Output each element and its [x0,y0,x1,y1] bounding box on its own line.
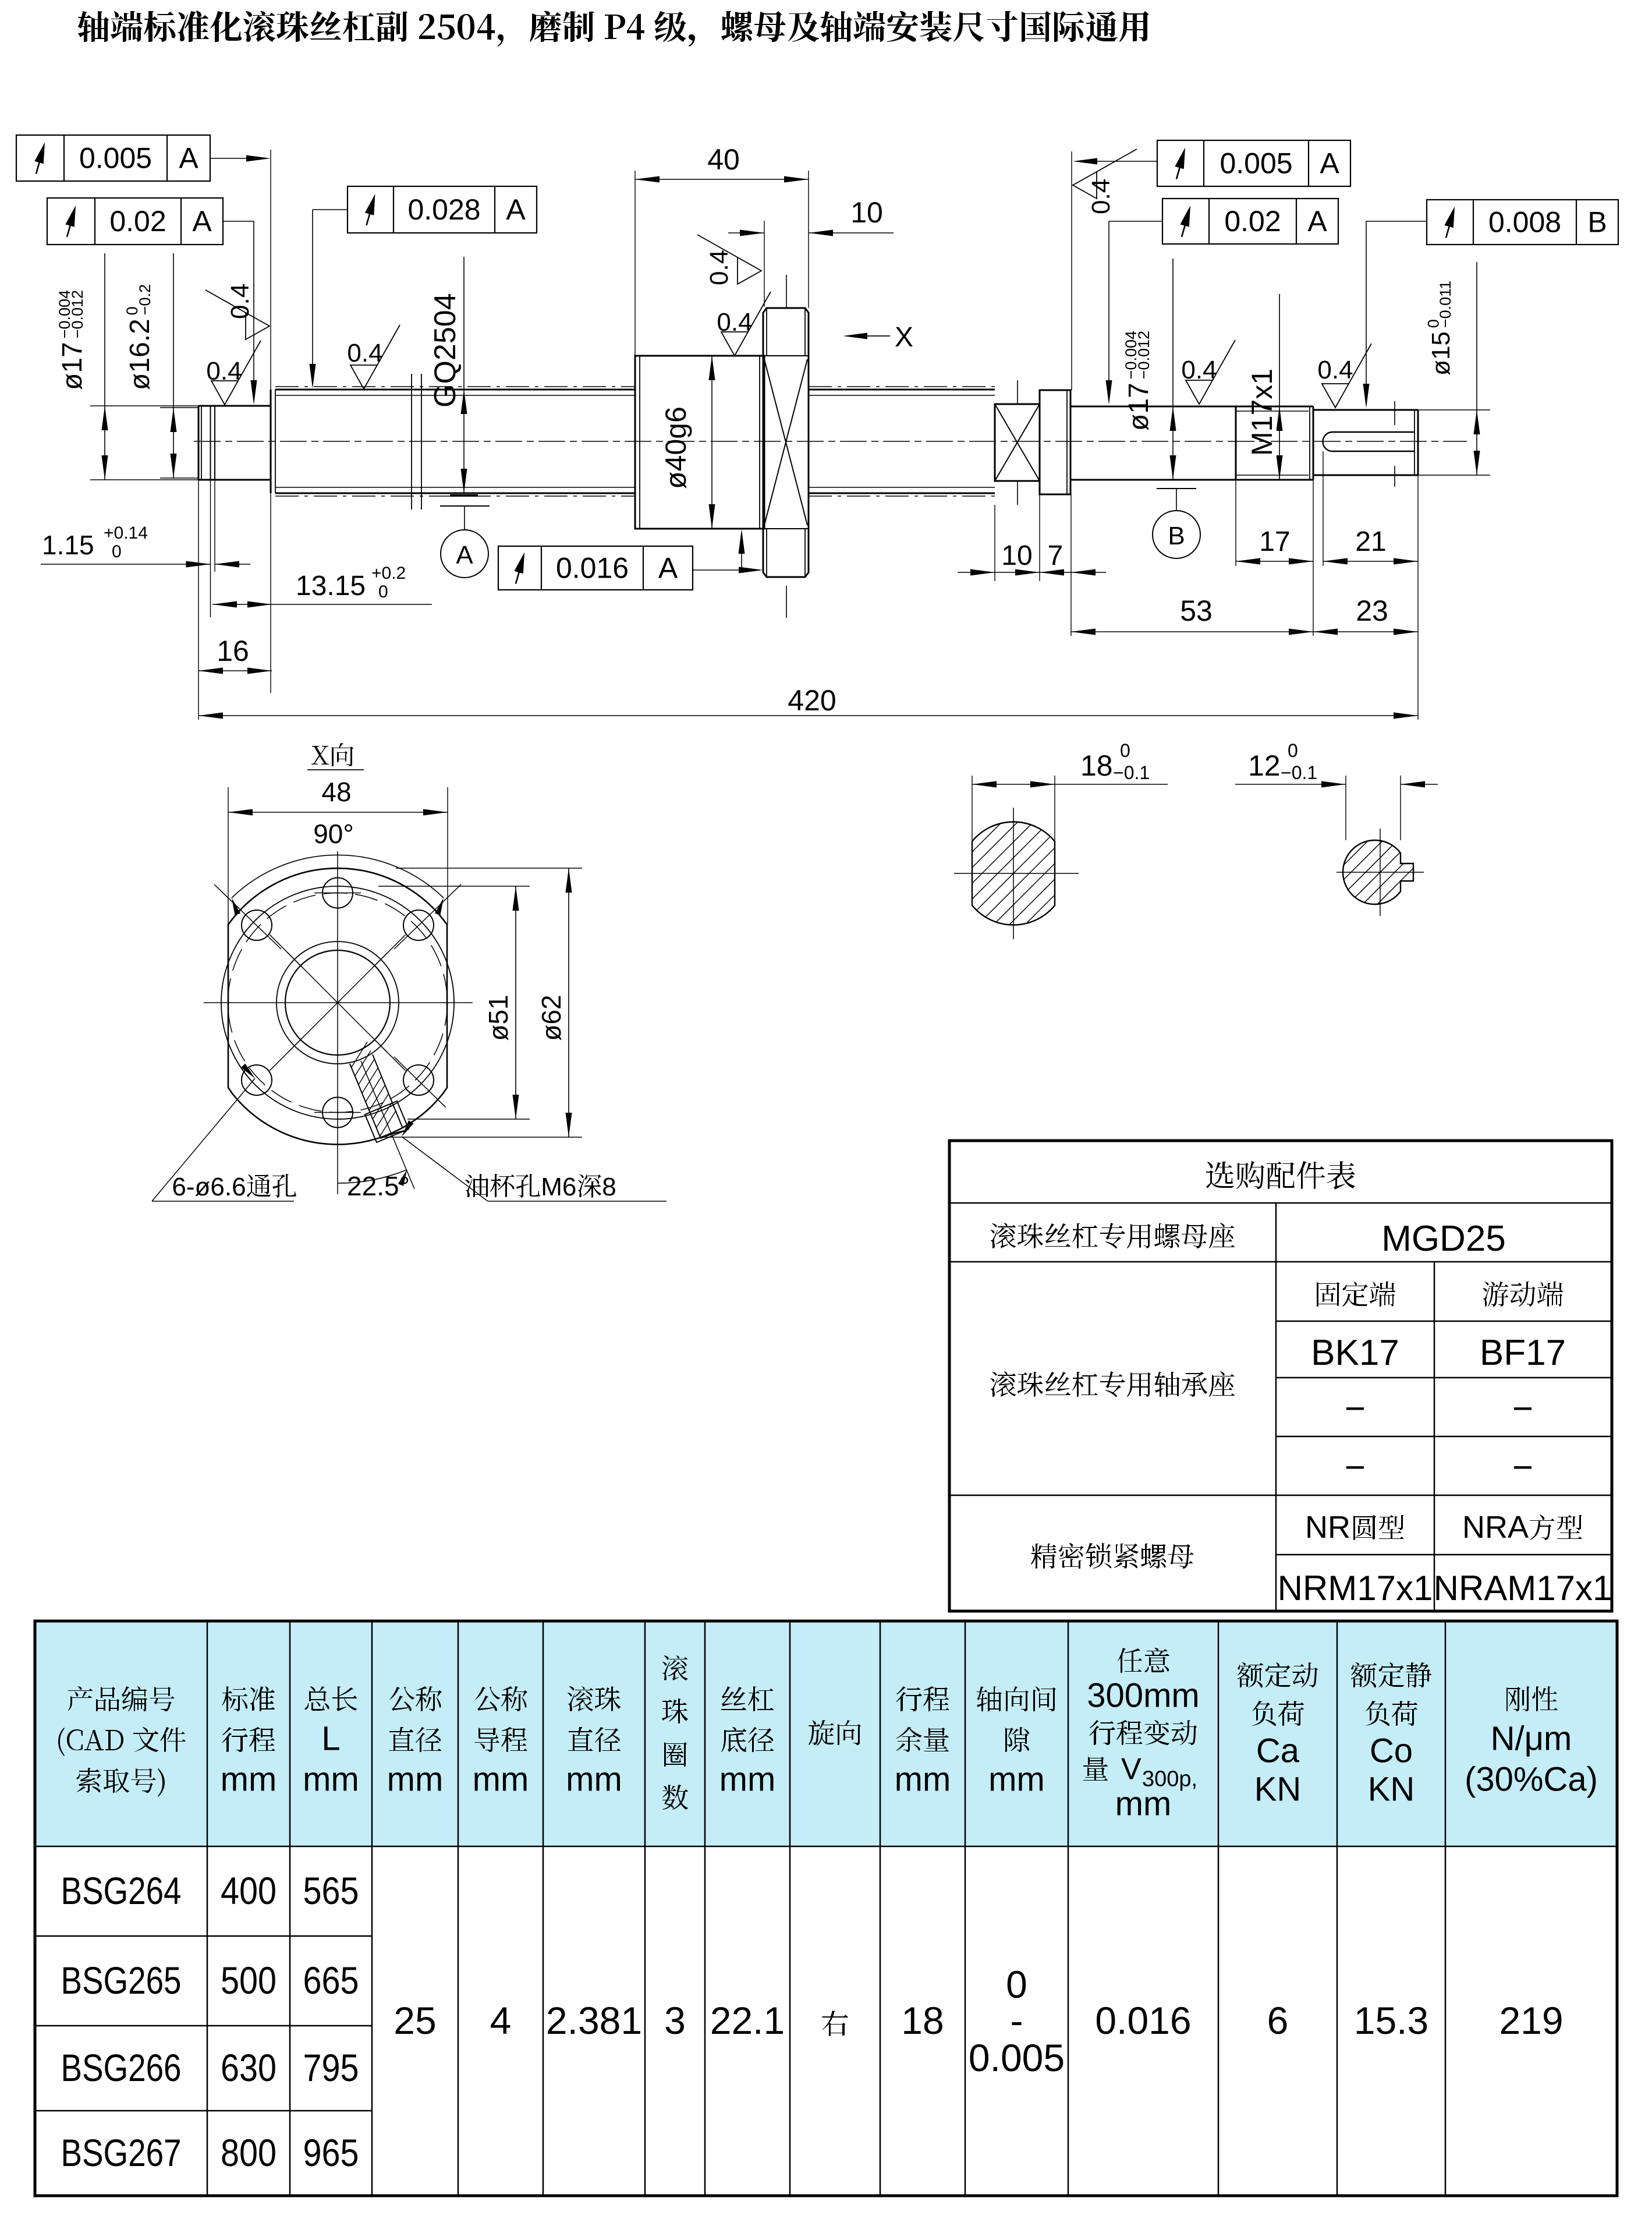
svg-text:800: 800 [221,2131,276,2174]
svg-text:0.016: 0.016 [556,552,629,585]
svg-text:−: − [1512,1448,1533,1488]
svg-text:10: 10 [1001,540,1032,571]
svg-text:NRA: NRA [1462,1510,1529,1545]
svg-text:mm: mm [387,1761,444,1799]
svg-text:0.02: 0.02 [1224,205,1281,238]
svg-text:ø16.2: ø16.2 [125,318,155,390]
svg-text:M17x1: M17x1 [1246,369,1278,456]
svg-text:0.4: 0.4 [717,308,752,337]
svg-text:A: A [506,193,526,226]
svg-text:ø17: ø17 [1123,383,1154,431]
svg-text:B: B [1587,206,1607,239]
svg-text:BSG267: BSG267 [61,2131,182,2174]
svg-text:−: − [1345,1448,1366,1488]
svg-text:0.4: 0.4 [206,357,242,385]
svg-text:21: 21 [1355,526,1386,557]
svg-text:B: B [1168,522,1185,550]
svg-text:Ca: Ca [1256,1732,1300,1770]
svg-text:−0.2: −0.2 [136,284,154,315]
svg-text:1.15: 1.15 [42,530,94,560]
svg-text:−0.1: −0.1 [1281,762,1317,783]
svg-text:mm: mm [566,1761,622,1799]
svg-text:0.02: 0.02 [109,205,166,238]
svg-text:7: 7 [1048,540,1063,571]
svg-text:565: 565 [303,1869,359,1912]
svg-text:NRAM17x1: NRAM17x1 [1434,1569,1612,1608]
svg-text:A: A [1307,205,1327,238]
svg-text:M6: M6 [541,1173,576,1201]
svg-text:16: 16 [217,635,249,667]
svg-text:0.005: 0.005 [969,2036,1065,2079]
svg-text:−0.1: −0.1 [1113,762,1150,783]
svg-text:665: 665 [303,1959,359,2002]
svg-text:6-ø6.6: 6-ø6.6 [172,1173,246,1201]
svg-text:−: − [1345,1389,1366,1429]
svg-text:mm: mm [988,1761,1045,1799]
svg-text:0.4: 0.4 [1087,179,1115,214]
svg-text:L: L [321,1720,340,1758]
svg-text:0.028: 0.028 [407,193,480,226]
svg-text:ø62: ø62 [536,995,566,1041]
svg-text:mm: mm [221,1761,277,1799]
svg-text:8: 8 [602,1173,616,1201]
svg-text:12: 12 [1248,749,1281,782]
svg-text:BSG265: BSG265 [61,1959,182,2002]
svg-text:0.016: 0.016 [1095,1999,1191,2042]
svg-text:0: 0 [1288,740,1298,761]
svg-text:2.381: 2.381 [546,1999,642,2042]
svg-text:KN: KN [1254,1771,1302,1809]
svg-text:KN: KN [1368,1771,1415,1809]
svg-text:N/μm: N/μm [1491,1720,1572,1758]
svg-text:219: 219 [1499,1999,1563,2042]
svg-text:22.5°: 22.5° [347,1171,410,1201]
svg-text:17: 17 [1259,526,1290,557]
svg-text:A: A [1320,147,1339,180]
svg-text:BK17: BK17 [1311,1333,1399,1373]
svg-text:A: A [179,142,198,175]
svg-text:500: 500 [221,1959,276,2002]
svg-text:ø40g6: ø40g6 [660,406,692,489]
svg-text:(30%Ca): (30%Ca) [1465,1761,1598,1799]
svg-text:630: 630 [221,2046,276,2089]
svg-text:15.3: 15.3 [1354,1999,1428,2042]
svg-text:NR: NR [1305,1510,1350,1545]
svg-text:25: 25 [393,1999,436,2042]
svg-text:10: 10 [850,196,883,229]
svg-text:mm: mm [303,1761,359,1799]
svg-text:NRM17x1: NRM17x1 [1278,1569,1433,1608]
svg-text:+0.14: +0.14 [104,523,148,543]
svg-text:−: − [1512,1389,1533,1429]
svg-text:300p,: 300p, [1142,1767,1197,1792]
svg-text:mm: mm [719,1761,776,1799]
svg-text:−0.012: −0.012 [1135,331,1153,379]
svg-text:−0.011: −0.011 [1437,281,1454,328]
svg-text:400: 400 [221,1869,276,1912]
svg-text:23: 23 [1356,594,1388,627]
svg-text:0.005: 0.005 [1219,147,1292,180]
svg-text:-: - [1011,1999,1023,2042]
svg-text:0.008: 0.008 [1488,206,1561,239]
svg-text:0.4: 0.4 [226,284,254,319]
svg-text:0: 0 [1120,740,1130,761]
svg-text:BSG266: BSG266 [61,2046,182,2089]
svg-text:BSG264: BSG264 [61,1869,182,1912]
svg-text:53: 53 [1180,594,1213,627]
svg-text:0: 0 [112,542,122,561]
svg-text:−0.012: −0.012 [69,290,86,338]
svg-text:6: 6 [1267,1999,1289,2042]
svg-text:0.4: 0.4 [347,339,382,367]
svg-text:ø15: ø15 [1427,331,1455,376]
svg-text:BF17: BF17 [1480,1333,1566,1373]
svg-text:V: V [1121,1753,1141,1786]
svg-text:A: A [658,552,678,585]
svg-text:mm: mm [473,1761,529,1799]
svg-text:ø17: ø17 [57,342,88,390]
svg-text:0: 0 [378,582,388,601]
svg-text:0.4: 0.4 [1181,356,1217,384]
svg-text:0.4: 0.4 [1317,356,1353,384]
svg-text:mm: mm [895,1761,951,1799]
svg-text:795: 795 [303,2046,359,2089]
svg-text:3: 3 [664,1999,686,2042]
svg-text:18: 18 [1080,749,1113,782]
svg-text:MGD25: MGD25 [1381,1219,1506,1259]
svg-text:0.005: 0.005 [79,142,152,175]
svg-text:13.15: 13.15 [296,571,366,601]
svg-text:+0.2: +0.2 [371,564,406,583]
svg-text:ø51: ø51 [483,995,513,1041]
svg-text:48: 48 [321,777,351,807]
svg-text:22.1: 22.1 [710,1999,785,2042]
svg-text:A: A [192,205,212,238]
svg-text:X: X [895,322,913,353]
svg-text:965: 965 [303,2131,359,2174]
svg-text:420: 420 [788,684,836,717]
svg-text:90°: 90° [313,819,354,849]
svg-text:18: 18 [901,1999,944,2042]
svg-text:GQ2504: GQ2504 [428,293,462,408]
svg-text:4: 4 [490,1999,512,2042]
svg-text:300mm: 300mm [1087,1677,1199,1715]
svg-text:40: 40 [707,143,740,176]
svg-text:0.4: 0.4 [705,250,733,285]
svg-text:Co: Co [1370,1732,1413,1770]
svg-text:A: A [456,541,473,569]
